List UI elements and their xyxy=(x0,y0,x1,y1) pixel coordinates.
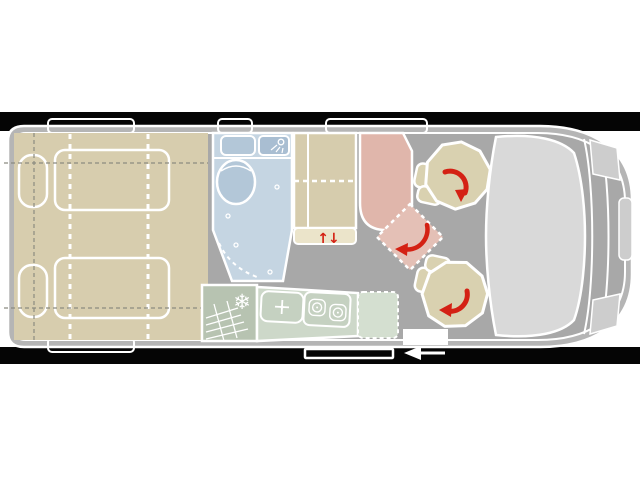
kitchen-stove xyxy=(303,292,351,327)
lift-arrows-icon: ↑↓ xyxy=(317,231,338,247)
mattress-bottom xyxy=(55,258,169,318)
kitchen-sink xyxy=(260,291,304,323)
front-bumper-strip xyxy=(619,198,632,260)
mattress-top xyxy=(55,150,169,210)
bathroom-sink xyxy=(221,136,255,155)
shower-panel xyxy=(259,136,289,155)
floorplan-svg: ↑↓ xyxy=(0,0,640,480)
van: ↑↓ xyxy=(0,119,632,352)
rear-door-marker-bottom xyxy=(0,240,6,326)
headlight-top xyxy=(590,140,620,180)
bathroom-area xyxy=(213,133,292,281)
stove-top xyxy=(303,292,351,327)
pillow-bottom xyxy=(19,265,47,317)
floorplan-stage: ↑↓ xyxy=(0,0,640,480)
kitchen-area: ❄ xyxy=(202,285,398,341)
windshield xyxy=(486,136,585,336)
snowflake-icon: ❄ xyxy=(233,290,251,314)
counter-extension xyxy=(358,292,398,338)
rear-bed-area xyxy=(4,133,208,340)
wardrobe-area: ↑↓ xyxy=(294,133,356,247)
rear-door-marker-top xyxy=(0,147,6,233)
headlight-bottom xyxy=(590,294,620,334)
entry-step xyxy=(403,329,448,345)
